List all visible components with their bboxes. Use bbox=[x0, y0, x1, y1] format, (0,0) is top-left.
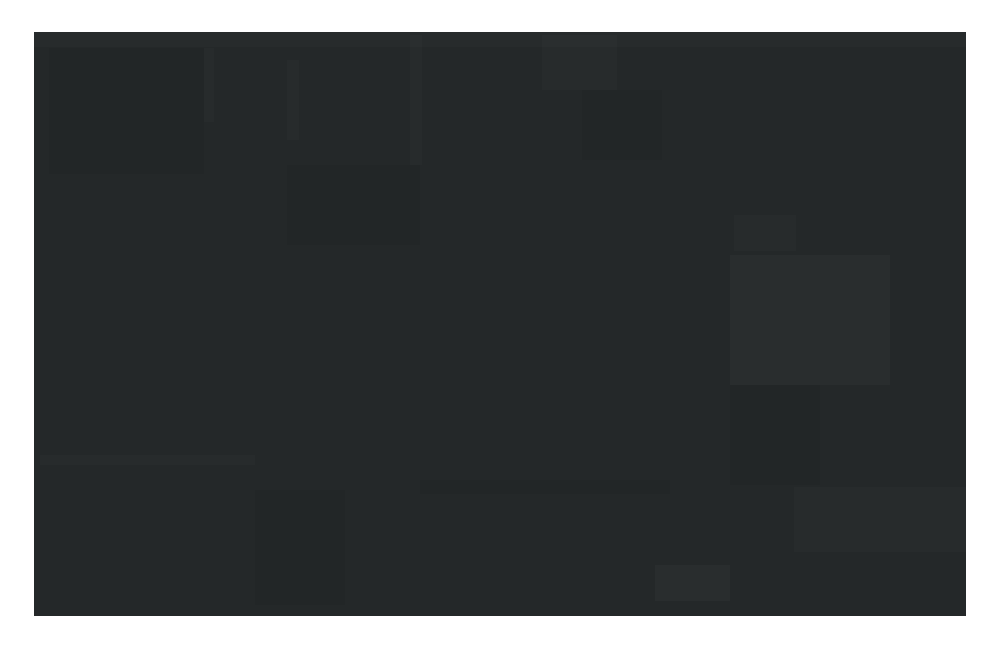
artifact-patch bbox=[582, 90, 662, 160]
artifact-patch bbox=[40, 455, 255, 465]
artifact-patch bbox=[794, 487, 966, 552]
artifact-patch bbox=[542, 35, 617, 90]
artifact-patch bbox=[255, 490, 345, 605]
artifact-patch bbox=[730, 255, 890, 385]
artifact-patch bbox=[49, 48, 204, 174]
blank-screen[interactable] bbox=[34, 32, 966, 616]
artifact-patch bbox=[204, 48, 214, 122]
artifact-patch bbox=[730, 385, 820, 485]
artifact-patch bbox=[34, 32, 966, 47]
artifact-patch bbox=[410, 35, 422, 165]
artifact-patch bbox=[287, 60, 299, 140]
artifact-patch bbox=[734, 215, 796, 251]
artifact-patch bbox=[420, 480, 670, 494]
artifact-patch bbox=[655, 565, 730, 601]
artifact-patch bbox=[287, 165, 420, 245]
